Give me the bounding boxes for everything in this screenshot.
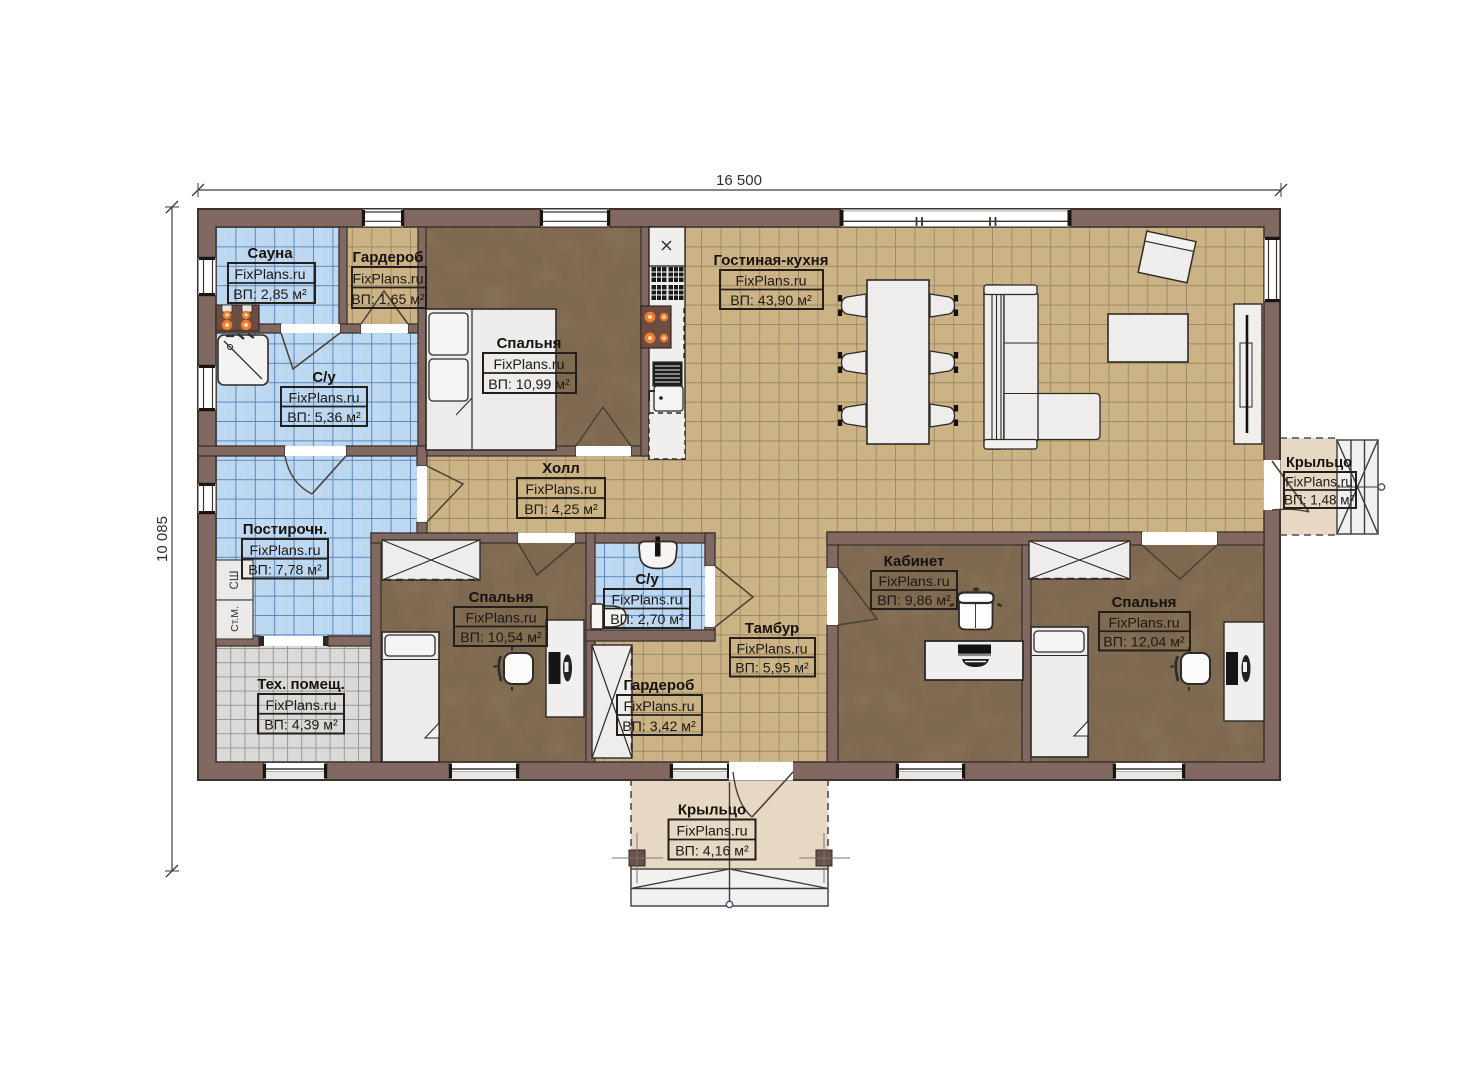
svg-text:ВП: 10,54 м²: ВП: 10,54 м² [460, 630, 542, 646]
svg-text:ВП: 43,90 м²: ВП: 43,90 м² [730, 293, 812, 309]
svg-text:ВП: 5,36 м²: ВП: 5,36 м² [287, 410, 361, 426]
svg-text:Гардероб: Гардероб [353, 249, 424, 266]
svg-text:ВП: 3,42 м²: ВП: 3,42 м² [622, 719, 696, 735]
svg-text:Крыльцо: Крыльцо [678, 802, 746, 819]
svg-text:FixPlans.ru: FixPlans.ru [624, 699, 695, 715]
svg-text:FixPlans.ru: FixPlans.ru [737, 641, 808, 657]
svg-text:16 500: 16 500 [716, 172, 762, 189]
svg-text:С/у: С/у [312, 369, 336, 386]
svg-text:FixPlans.ru: FixPlans.ru [289, 391, 360, 407]
svg-text:Спальня: Спальня [1112, 594, 1177, 611]
svg-text:Ст.М.: Ст.М. [229, 606, 241, 632]
svg-text:Тамбур: Тамбур [745, 620, 799, 637]
svg-text:FixPlans.ru: FixPlans.ru [1285, 474, 1353, 489]
svg-text:ВП: 10,99 м²: ВП: 10,99 м² [488, 377, 570, 393]
svg-text:Крыльцо: Крыльцо [1286, 455, 1352, 471]
svg-text:FixPlans.ru: FixPlans.ru [879, 574, 950, 590]
svg-text:Тех. помещ.: Тех. помещ. [257, 676, 345, 693]
svg-text:ВП: 12,04 м²: ВП: 12,04 м² [1103, 635, 1185, 651]
svg-text:FixPlans.ru: FixPlans.ru [250, 543, 321, 559]
svg-text:FixPlans.ru: FixPlans.ru [526, 482, 597, 498]
svg-text:FixPlans.ru: FixPlans.ru [466, 611, 537, 627]
svg-text:Гостиная-кухня: Гостиная-кухня [714, 252, 829, 269]
svg-text:ВП: 4,25 м²: ВП: 4,25 м² [524, 502, 598, 518]
svg-text:FixPlans.ru: FixPlans.ru [494, 357, 565, 373]
svg-text:ВП: 7,78 м²: ВП: 7,78 м² [248, 563, 322, 579]
svg-text:ВП: 1,48 м²: ВП: 1,48 м² [1284, 492, 1355, 507]
svg-text:FixPlans.ru: FixPlans.ru [736, 274, 807, 290]
svg-text:FixPlans.ru: FixPlans.ru [1109, 615, 1180, 631]
svg-text:Холл: Холл [542, 460, 580, 477]
svg-text:С/у: С/у [635, 571, 659, 588]
svg-text:FixPlans.ru: FixPlans.ru [353, 271, 424, 287]
svg-text:Кабинет: Кабинет [884, 553, 945, 570]
svg-text:ВП: 9,86 м²: ВП: 9,86 м² [877, 593, 951, 609]
svg-text:FixPlans.ru: FixPlans.ru [677, 824, 748, 840]
svg-text:Спальня: Спальня [469, 589, 534, 606]
svg-text:Сауна: Сауна [247, 245, 293, 262]
svg-text:ВП: 4,39 м²: ВП: 4,39 м² [264, 718, 338, 734]
svg-text:ВП: 4,16 м²: ВП: 4,16 м² [675, 844, 749, 860]
svg-text:ВП: 1,65 м²: ВП: 1,65 м² [351, 292, 425, 308]
svg-text:FixPlans.ru: FixPlans.ru [235, 267, 306, 283]
svg-text:ВП: 2,85 м²: ВП: 2,85 м² [233, 287, 307, 303]
svg-text:Спальня: Спальня [497, 335, 562, 352]
svg-text:Постирочн.: Постирочн. [243, 521, 328, 538]
svg-text:СШ: СШ [229, 571, 241, 590]
svg-text:ВП: 5,95 м²: ВП: 5,95 м² [735, 661, 809, 677]
svg-text:FixPlans.ru: FixPlans.ru [612, 593, 683, 609]
svg-text:Гардероб: Гардероб [624, 677, 695, 694]
svg-text:ВП: 2,70 м²: ВП: 2,70 м² [610, 612, 684, 628]
svg-text:FixPlans.ru: FixPlans.ru [266, 698, 337, 714]
svg-text:10 085: 10 085 [154, 516, 171, 562]
